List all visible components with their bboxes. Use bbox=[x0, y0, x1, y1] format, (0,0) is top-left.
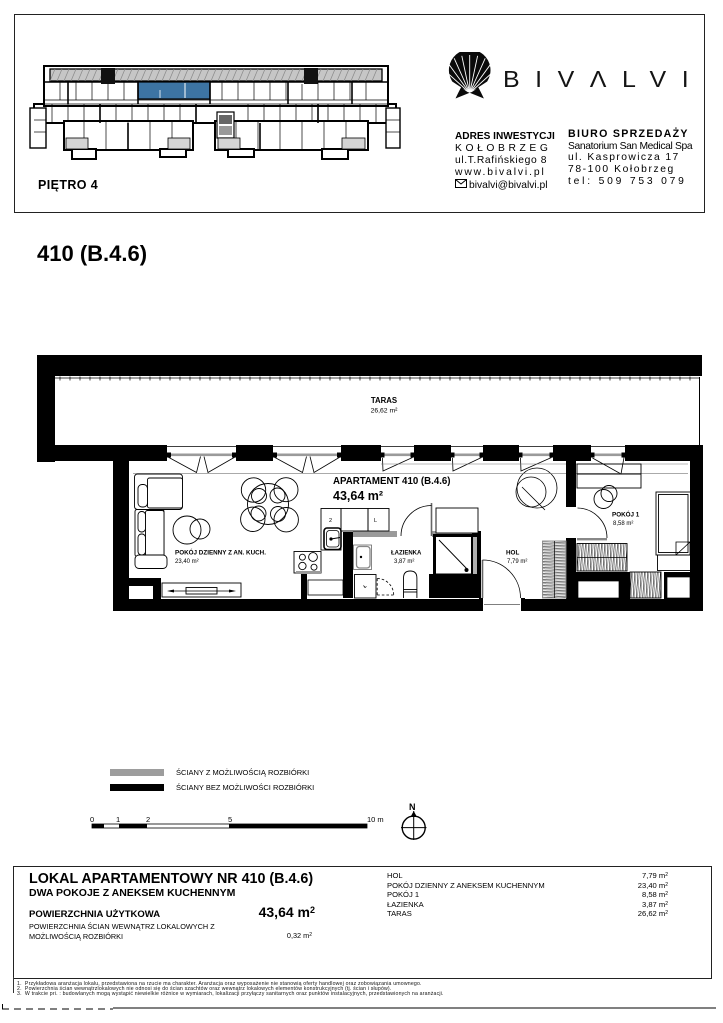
svg-text:0: 0 bbox=[90, 815, 94, 824]
svg-text:L: L bbox=[374, 518, 377, 524]
svg-text:26,62 m²: 26,62 m² bbox=[371, 408, 399, 415]
svg-text:2: 2 bbox=[329, 518, 332, 524]
svg-text:1: 1 bbox=[116, 815, 120, 824]
svg-text:POKÓJ 1: POKÓJ 1 bbox=[612, 510, 640, 519]
svg-text:5: 5 bbox=[228, 815, 232, 824]
svg-text:APARTAMENT 410 (B.4.6): APARTAMENT 410 (B.4.6) bbox=[333, 476, 451, 487]
svg-text:8,58 m²: 8,58 m² bbox=[613, 521, 633, 527]
svg-text:43,64 m²: 43,64 m² bbox=[333, 489, 383, 503]
svg-text:POKÓJ DZIENNY Z AN. KUCH.: POKÓJ DZIENNY Z AN. KUCH. bbox=[175, 548, 266, 557]
svg-text:ŁAZIENKA: ŁAZIENKA bbox=[391, 551, 422, 557]
svg-text:N: N bbox=[409, 802, 416, 812]
svg-text:10 m: 10 m bbox=[367, 815, 384, 824]
svg-text:3,87 m²: 3,87 m² bbox=[394, 559, 414, 565]
svg-text:23,40 m²: 23,40 m² bbox=[175, 559, 199, 565]
svg-text:HOL: HOL bbox=[506, 550, 519, 557]
svg-text:TARAS: TARAS bbox=[371, 396, 397, 405]
svg-text:2: 2 bbox=[146, 815, 150, 824]
svg-text:7,79 m²: 7,79 m² bbox=[507, 559, 527, 565]
